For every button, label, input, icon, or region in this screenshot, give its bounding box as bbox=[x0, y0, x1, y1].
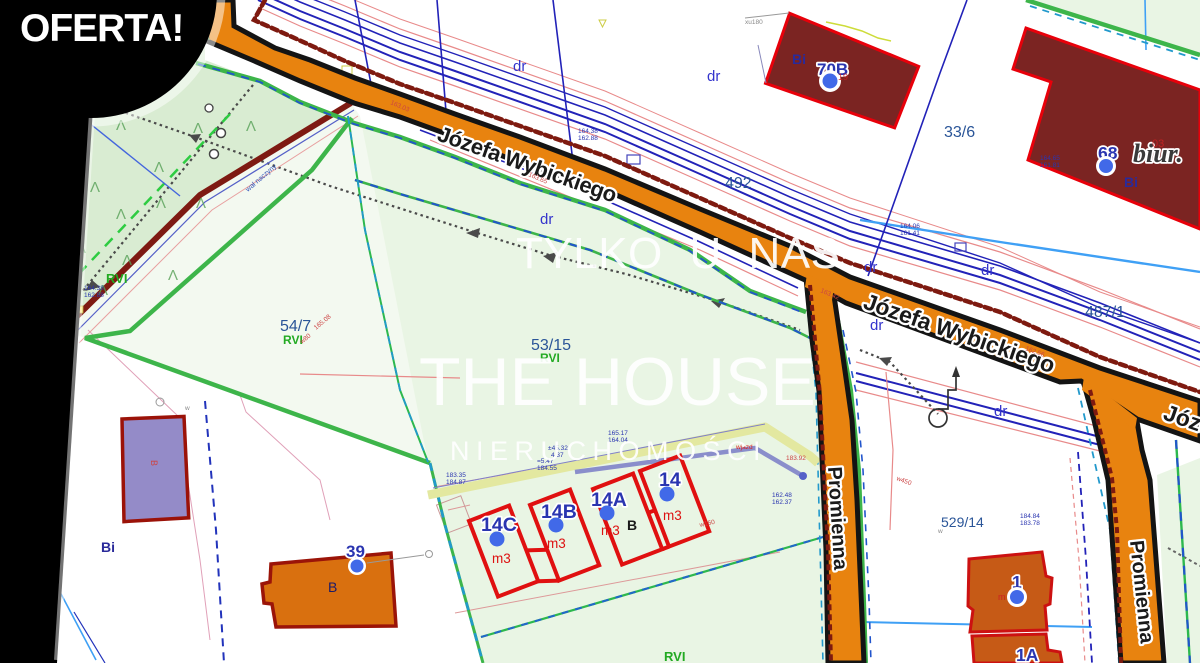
svg-text:164.06: 164.06 bbox=[900, 223, 920, 230]
svg-text:dr: dr bbox=[981, 262, 994, 279]
svg-text:NIERUCHOMOŚCI: NIERUCHOMOŚCI bbox=[450, 434, 767, 466]
svg-text:1A: 1A bbox=[1016, 645, 1039, 663]
svg-text:162.48: 162.48 bbox=[772, 492, 792, 499]
svg-text:m3: m3 bbox=[663, 508, 682, 523]
svg-text:Λ: Λ bbox=[156, 195, 166, 212]
svg-text:161.81: 161.81 bbox=[1040, 162, 1060, 169]
svg-text:THE HOUSE: THE HOUSE bbox=[419, 344, 816, 420]
svg-text:Λ: Λ bbox=[196, 195, 206, 212]
svg-text:Bi: Bi bbox=[1124, 174, 1138, 190]
svg-text:Λ: Λ bbox=[154, 159, 164, 176]
svg-text:RVI: RVI bbox=[106, 271, 127, 286]
svg-text:TYLKO U NAS: TYLKO U NAS bbox=[516, 229, 840, 278]
svg-text:xu180: xu180 bbox=[745, 19, 763, 26]
svg-text:164.38: 164.38 bbox=[578, 128, 598, 135]
svg-text:162.88: 162.88 bbox=[578, 135, 598, 142]
svg-text:492: 492 bbox=[725, 175, 752, 192]
svg-text:m: m bbox=[998, 592, 1006, 602]
svg-text:Bi: Bi bbox=[792, 51, 806, 67]
svg-text:w: w bbox=[937, 528, 943, 535]
svg-text:19: 19 bbox=[838, 72, 848, 82]
svg-text:162.37: 162.37 bbox=[772, 499, 792, 506]
svg-text:Λ: Λ bbox=[90, 179, 100, 196]
svg-text:dr: dr bbox=[994, 403, 1007, 420]
svg-text:dr: dr bbox=[707, 68, 720, 85]
svg-text:164.38: 164.38 bbox=[84, 285, 104, 292]
svg-text:487/1: 487/1 bbox=[1085, 304, 1125, 321]
svg-text:183.78: 183.78 bbox=[1020, 520, 1040, 527]
svg-text:184.87: 184.87 bbox=[446, 479, 466, 486]
svg-text:Λ: Λ bbox=[246, 118, 256, 135]
svg-text:164.65: 164.65 bbox=[1040, 155, 1060, 162]
svg-text:529/14: 529/14 bbox=[941, 514, 984, 530]
svg-text:B: B bbox=[149, 460, 159, 466]
svg-text:Λ: Λ bbox=[116, 206, 126, 223]
svg-text:03: 03 bbox=[1152, 138, 1164, 150]
svg-text:33/6: 33/6 bbox=[944, 124, 975, 141]
svg-text:Bi: Bi bbox=[101, 539, 115, 555]
svg-text:Λ: Λ bbox=[168, 267, 178, 284]
svg-text:OFERTA!: OFERTA! bbox=[20, 7, 183, 50]
svg-text:RVI: RVI bbox=[664, 649, 685, 663]
svg-text:B: B bbox=[328, 579, 337, 595]
svg-text:dr: dr bbox=[864, 259, 877, 276]
svg-text:w: w bbox=[184, 405, 190, 412]
svg-text:m3: m3 bbox=[601, 523, 620, 538]
svg-text:184.55: 184.55 bbox=[537, 465, 557, 472]
svg-text:183.92: 183.92 bbox=[786, 455, 806, 462]
svg-text:162.88: 162.88 bbox=[84, 292, 104, 299]
svg-text:Λ: Λ bbox=[122, 252, 132, 269]
svg-text:dr: dr bbox=[540, 211, 553, 228]
svg-text:dr: dr bbox=[513, 58, 526, 75]
svg-text:183.35: 183.35 bbox=[446, 472, 466, 479]
svg-text:m3: m3 bbox=[547, 536, 566, 551]
svg-text:184.84: 184.84 bbox=[1020, 513, 1040, 520]
svg-text:Λ: Λ bbox=[193, 120, 203, 137]
svg-text:m3: m3 bbox=[492, 551, 511, 566]
svg-text:161.41: 161.41 bbox=[900, 230, 920, 237]
svg-text:B: B bbox=[627, 517, 637, 533]
